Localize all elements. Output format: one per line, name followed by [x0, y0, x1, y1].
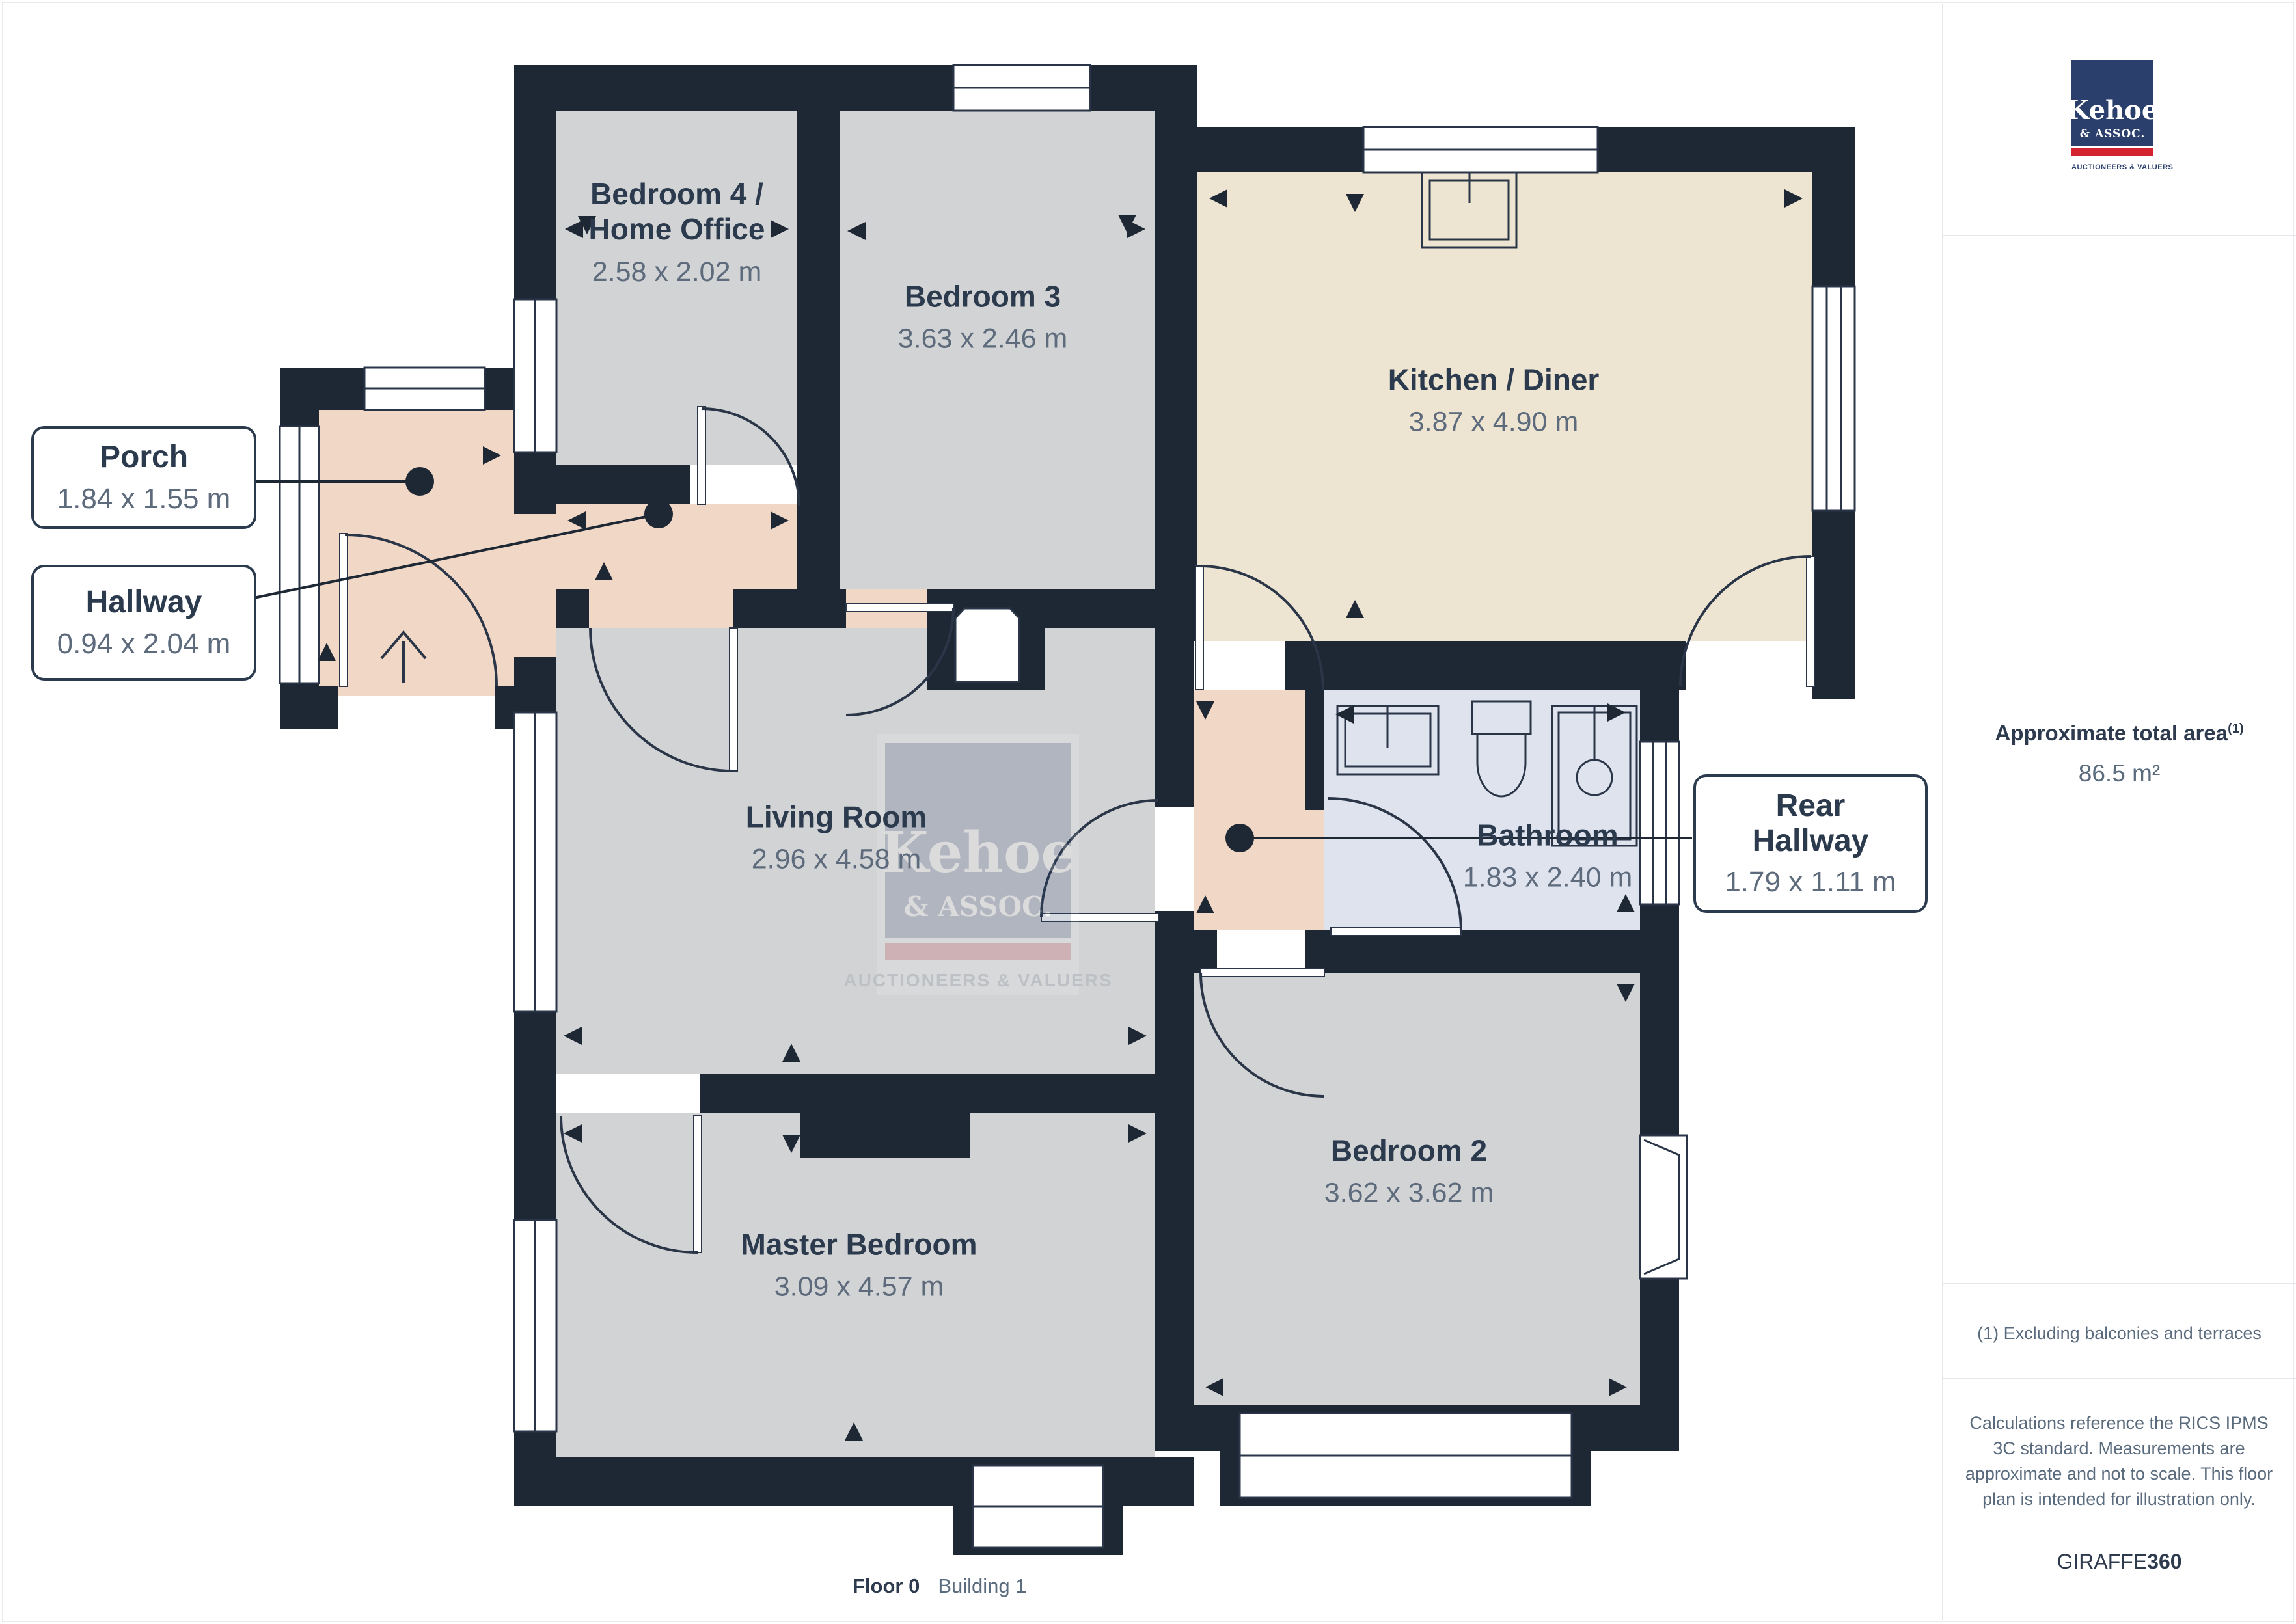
window-porch-top: [364, 368, 485, 410]
master-floor: [556, 1113, 1155, 1457]
area-footnote: (1) Excluding balconies and terraces: [1943, 1323, 2296, 1344]
hallway-dims: 0.94 x 2.04 m: [57, 628, 231, 660]
sidebar-divider-mid: [1943, 1283, 2296, 1284]
building-label: Building 1: [938, 1575, 1026, 1598]
agency-logo-red-stripe: [2071, 148, 2153, 156]
watermark-tagline: AUCTIONEERS & VALUERS: [843, 970, 1112, 990]
sidebar-divider-bottom: [1943, 1378, 2296, 1379]
floor-indicator: Floor 0 Building 1: [853, 1575, 1027, 1598]
agency-logo: Kehoe & ASSOC. AUCTIONEERS & VALUERS: [2071, 60, 2153, 171]
total-area-label: Approximate total area(1): [1943, 721, 2296, 746]
agency-logo-assoc: & ASSOC.: [2080, 128, 2146, 141]
chimney-breast-master: [800, 1074, 970, 1158]
rear-hallway-name: Rear Hallway: [1753, 789, 1869, 859]
window-left-upper: [514, 299, 556, 452]
disclaimer-text: Calculations reference the RICS IPMS 3C …: [1959, 1411, 2279, 1513]
bathroom-floor: [1324, 690, 1640, 930]
total-area-superscript: (1): [2228, 722, 2243, 736]
floorplan-drawing: Kehoe & ASSOC. AUCTIONEERS & VALUERS: [0, 0, 2296, 1624]
window-kitchen-top: [1363, 127, 1598, 172]
callout-hallway: Hallway 0.94 x 2.04 m: [31, 565, 256, 681]
window-master-left: [514, 1220, 556, 1431]
porch-leader-dot: [405, 467, 434, 496]
total-area-value: 86.5 m²: [1943, 760, 2296, 787]
window-bathroom-right: [1640, 742, 1679, 904]
hallway-floor: [556, 504, 797, 589]
total-area-block: Approximate total area(1) 86.5 m²: [1943, 721, 2296, 787]
bedroom4-floor: [556, 111, 797, 465]
window-bedroom3-top: [953, 65, 1090, 111]
window-kitchen-right: [1812, 286, 1855, 511]
porch-dims: 1.84 x 1.55 m: [57, 483, 231, 515]
agency-logo-box: Kehoe & ASSOC.: [2071, 60, 2153, 146]
brand-name: GIRAFFE: [2057, 1550, 2147, 1573]
rear-hallway-dims: 1.79 x 1.11 m: [1725, 866, 1896, 899]
bedroom2-floor: [1194, 973, 1640, 1405]
agency-logo-name: Kehoe: [2067, 98, 2159, 124]
watermark-line2: & ASSOC.: [904, 891, 1053, 923]
fireplace-niche: [955, 608, 1019, 682]
sidebar-divider-top: [1943, 235, 2296, 236]
agency-logo-tagline: AUCTIONEERS & VALUERS: [2071, 163, 2153, 171]
giraffe360-brand: GIRAFFE360: [1943, 1550, 2296, 1574]
floor-label: Floor 0: [853, 1575, 920, 1598]
hallway-leader-dot: [644, 500, 673, 528]
window-master-bay: [973, 1465, 1103, 1547]
window-bedroom2-right: [1640, 1135, 1687, 1279]
watermark-line1: Kehoe: [880, 820, 1076, 886]
window-living-left: [514, 712, 556, 1012]
window-bedroom2-bay: [1240, 1413, 1572, 1498]
callout-rear-hallway: Rear Hallway 1.79 x 1.11 m: [1693, 774, 1928, 913]
window-porch-left: [280, 426, 319, 683]
callout-porch: Porch 1.84 x 1.55 m: [31, 426, 256, 529]
bedroom3-floor: [840, 111, 1155, 589]
kitchen-floor: [1197, 172, 1812, 641]
hallway-name: Hallway: [86, 585, 202, 620]
rear-hallway-leader-dot: [1225, 824, 1254, 852]
brand-suffix: 360: [2147, 1550, 2181, 1573]
total-area-label-text: Approximate total area: [1995, 721, 2228, 745]
porch-name: Porch: [100, 440, 188, 475]
watermark: Kehoe & ASSOC. AUCTIONEERS & VALUERS: [843, 734, 1112, 995]
